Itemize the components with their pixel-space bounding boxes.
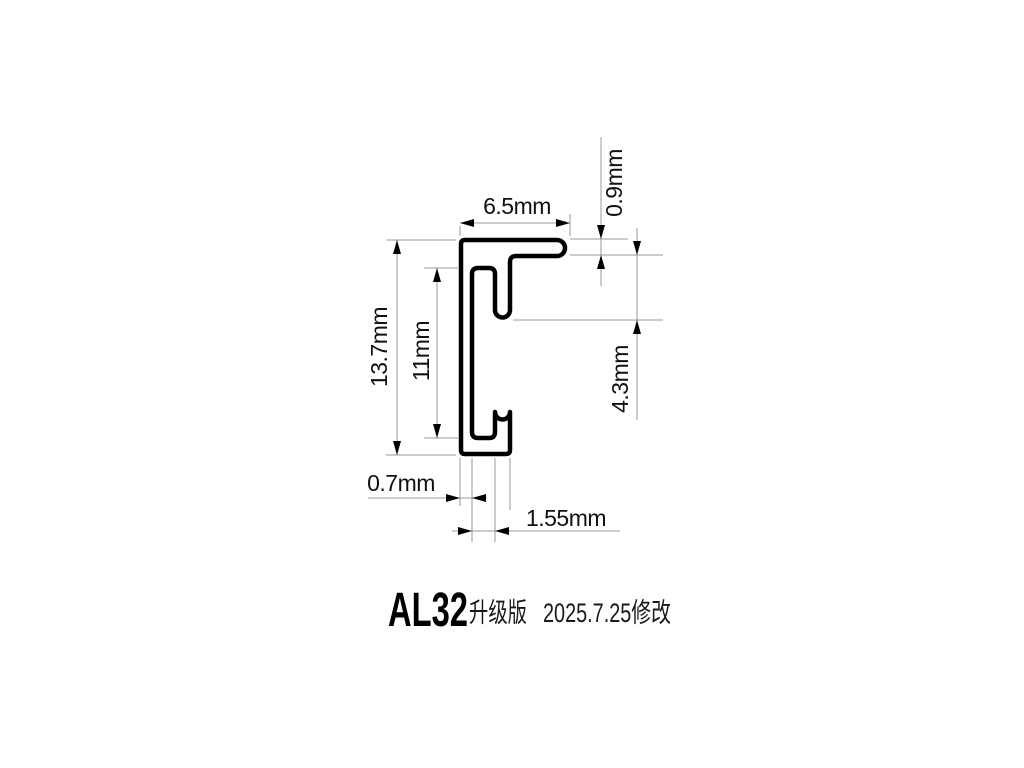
drawing-page: 6.5mm 0.9mm 4.3mm 13.7mm: [0, 0, 1024, 768]
dim-label-wall-thickness: 0.7mm: [367, 470, 435, 496]
dim-label-hook-depth: 4.3mm: [607, 345, 633, 413]
dim-label-inner-height: 11mm: [408, 321, 434, 381]
title-revision: 2025.7.25修改: [543, 598, 671, 628]
title-model: AL32: [388, 584, 468, 637]
dim-label-flange-thickness: 0.9mm: [601, 149, 627, 217]
dim-label-overall-height: 13.7mm: [366, 307, 392, 387]
technical-drawing: 6.5mm 0.9mm 4.3mm 13.7mm: [0, 0, 1024, 768]
canvas-background: [0, 0, 1024, 768]
title-edition: 升级版: [469, 598, 527, 628]
dim-label-slot-width: 1.55mm: [526, 505, 606, 531]
dim-label-top-width: 6.5mm: [483, 193, 551, 219]
